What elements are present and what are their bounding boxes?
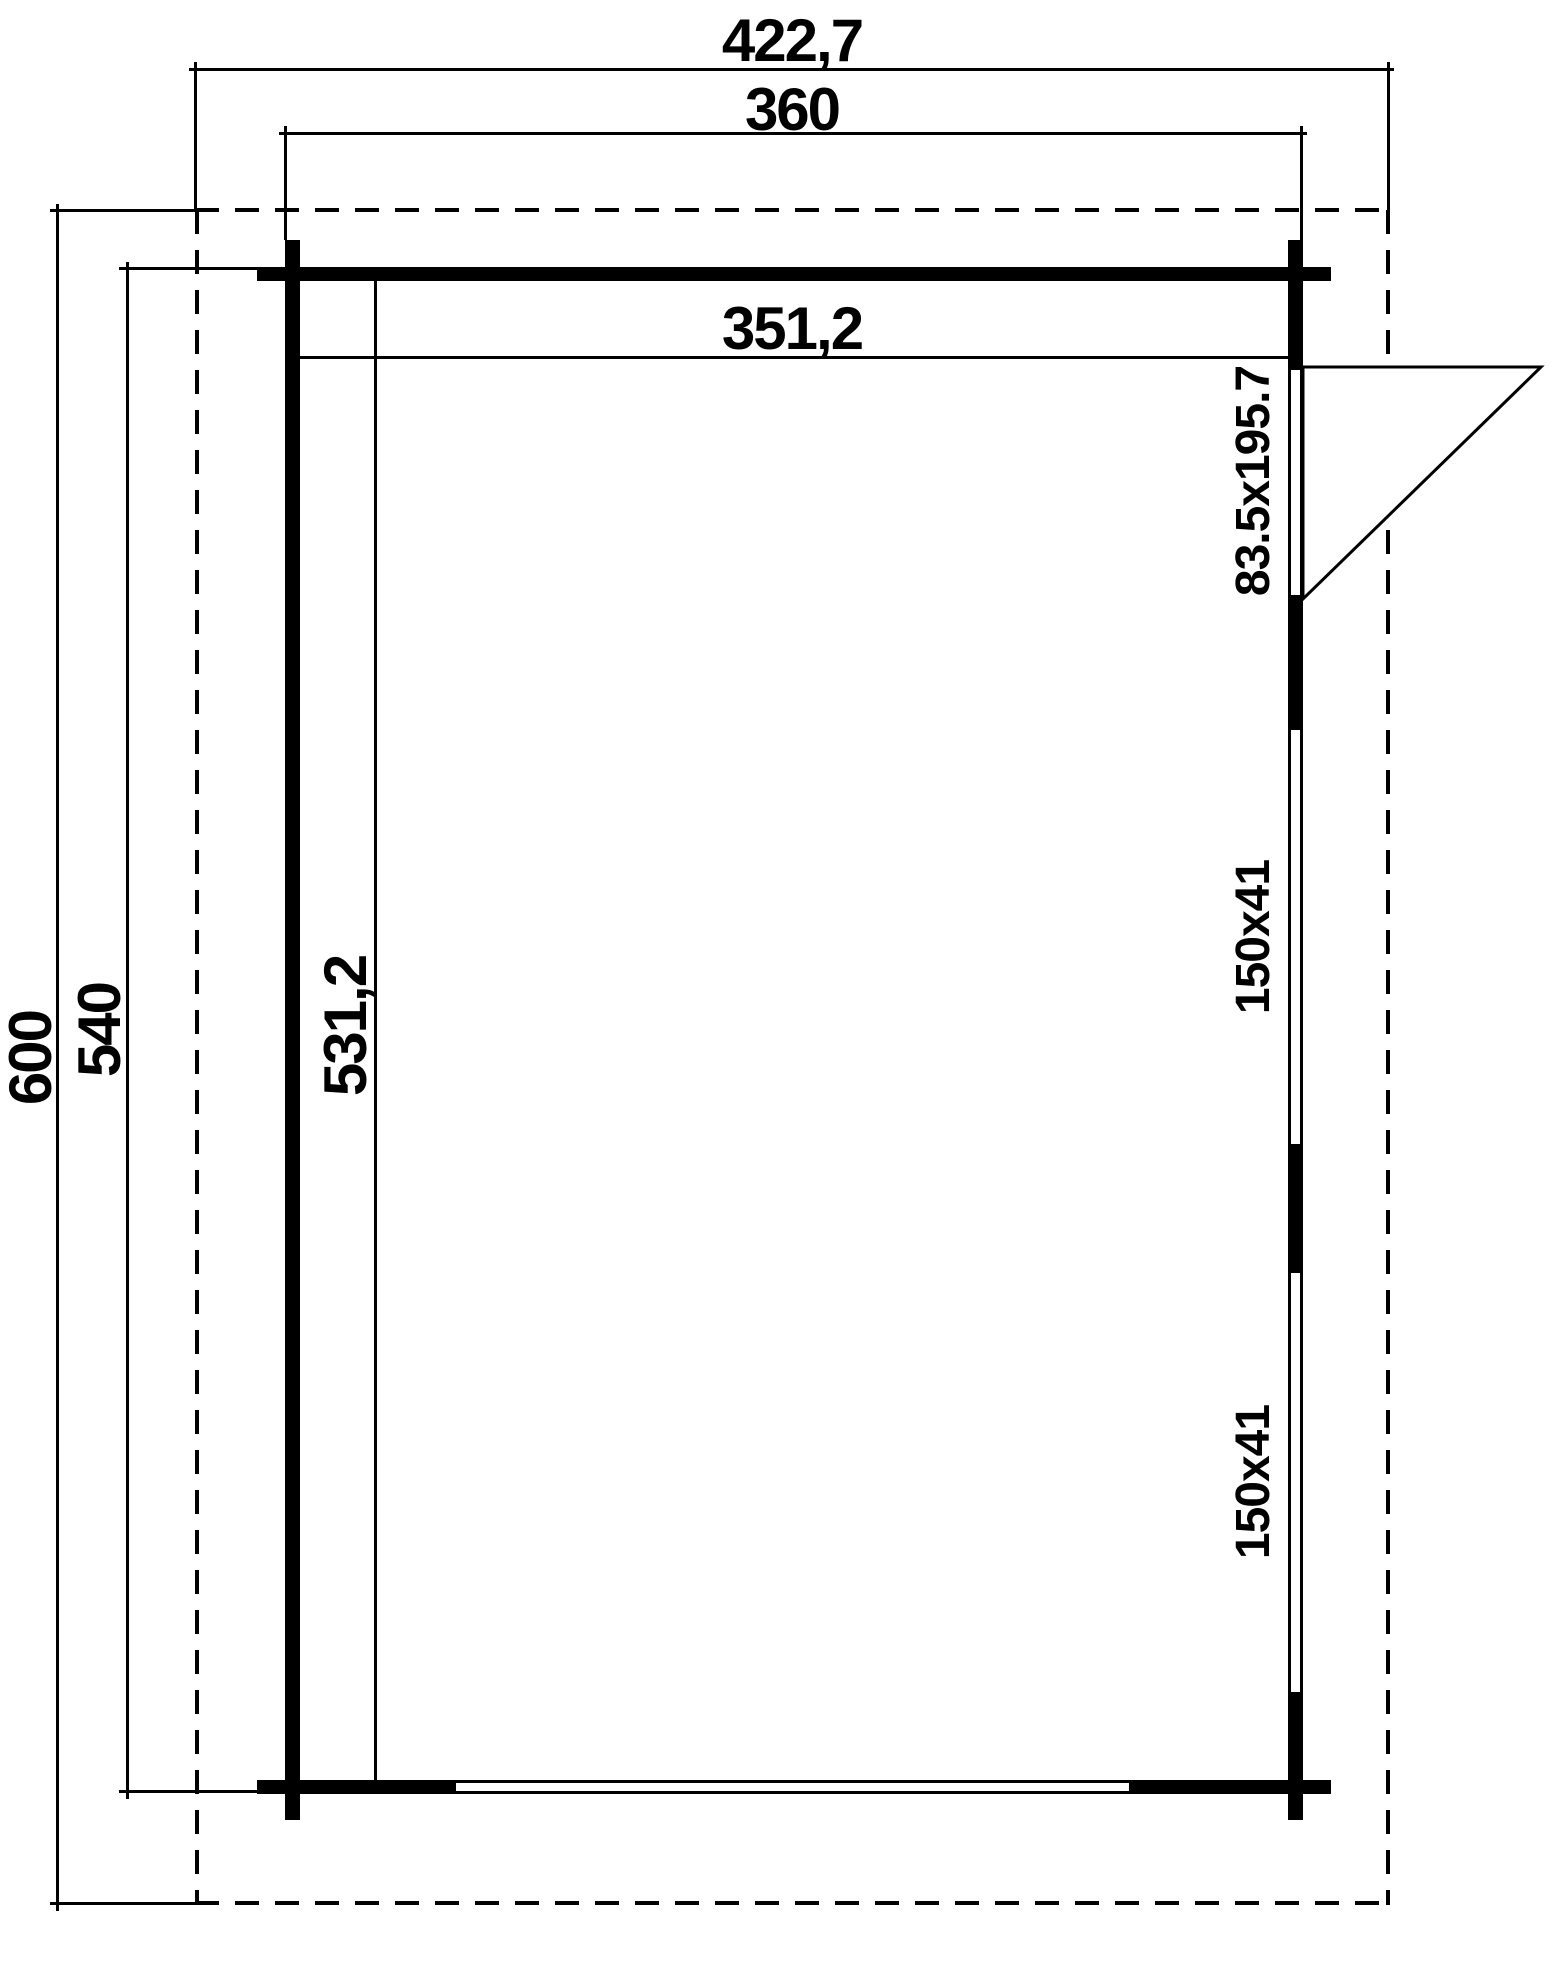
roof-outline-bottom <box>195 1901 1390 1905</box>
roof-outline-left <box>195 210 199 1905</box>
dim-roof-width-ext-left <box>194 62 197 210</box>
dim-roof-depth-ext-top <box>50 209 195 212</box>
dim-outer-depth-ext-bottom <box>119 1790 257 1793</box>
dim-roof-width-ext-right <box>1387 62 1390 210</box>
wall-right-segment-2 <box>1288 598 1303 727</box>
window-bottom-size-label: 150x41 <box>1230 1282 1278 1682</box>
rear-opening <box>453 1780 1132 1794</box>
floor-plan-drawing: 422,7 360 351,2 600 540 531,2 83.5x195.7… <box>0 0 1561 1961</box>
wall-left <box>285 240 300 1820</box>
dim-outer-width-ext-left <box>284 126 287 240</box>
wall-top <box>257 267 1331 281</box>
dim-inner-depth-label: 531,2 <box>316 826 376 1226</box>
door-swing-triangle <box>1300 362 1546 604</box>
window-bottom <box>1288 1270 1303 1695</box>
dim-roof-depth-ext-bottom <box>50 1902 195 1905</box>
wall-right-segment-4 <box>1288 1695 1303 1820</box>
wall-right-segment-1 <box>1288 240 1303 367</box>
dim-inner-width-label: 351,2 <box>592 299 992 359</box>
window-top-size-label: 150x41 <box>1230 737 1278 1137</box>
dim-roof-width-label: 422,7 <box>592 11 992 71</box>
wall-right-segment-3 <box>1288 1147 1303 1270</box>
dim-roof-depth-label: 600 <box>1 858 61 1258</box>
door-size-label: 83.5x195.7 <box>1230 281 1278 681</box>
dim-outer-depth-label: 540 <box>70 830 130 1230</box>
dim-outer-width-label: 360 <box>592 80 992 140</box>
window-top <box>1288 727 1303 1147</box>
roof-outline-top <box>195 208 1390 212</box>
dim-outer-width-ext-right <box>1300 126 1303 240</box>
dim-outer-depth-ext-top <box>119 267 257 270</box>
